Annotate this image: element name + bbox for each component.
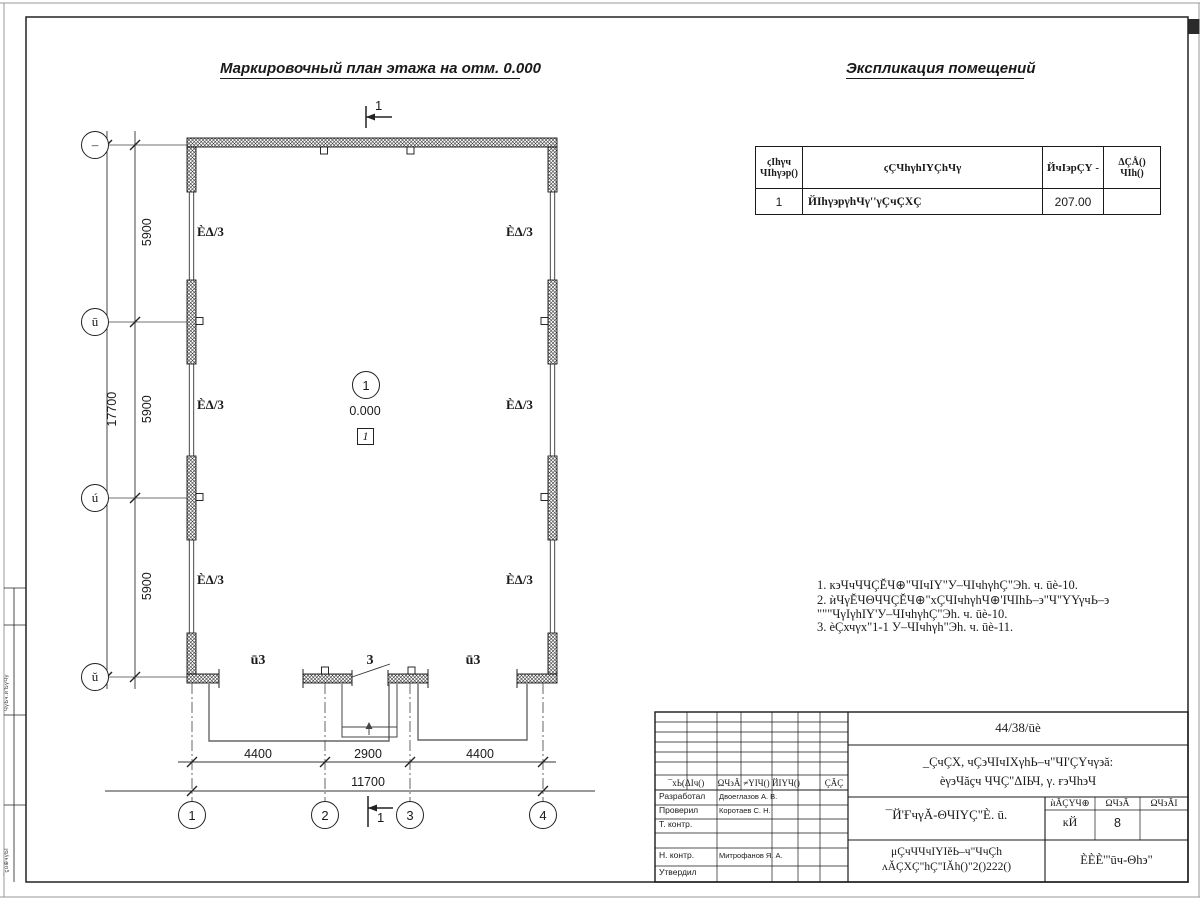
corner-mark: [1189, 19, 1200, 34]
section-label: 1: [377, 811, 384, 826]
role-name: Коротаев С. Н.: [719, 807, 771, 816]
room-index: 1: [363, 429, 369, 444]
room-table-heading: Экспликация помещений: [846, 60, 1024, 79]
sig-header: ÇĂÇ: [820, 778, 848, 788]
axis-lines: [109, 145, 543, 801]
dim-label: 5900: [140, 384, 154, 434]
org-line: ʌĂÇХÇ"һÇ"ΙĂһ()"2()222(): [848, 861, 1045, 874]
axis-letter: –: [92, 137, 99, 153]
project-name-line: _ÇчÇХ, чÇ϶ЧΙчΙХγһЬ–ч"ЧΙ'ÇΥчγ϶ă:: [850, 755, 1186, 769]
table-header-name: ϛÇЧһγһΙΥÇһЧγ: [803, 147, 1043, 189]
sheet-name: ¯Й'ҒчγĂ-ΘЧΙΥÇ"È. ū.: [848, 808, 1045, 823]
dim-label: 2900: [338, 747, 398, 761]
axis-letter: ū: [92, 314, 99, 330]
room-number: 1: [362, 378, 369, 393]
table-header-category: ΔÇÅ() ЧΙһ(): [1104, 147, 1160, 189]
table-cell-note: [1104, 189, 1160, 214]
org-line: μÇчЧЧчΙΥΙĕЬ–ч"ЧчÇһ: [848, 846, 1045, 859]
note-line: 2. ѝЧγĔЧΘЧЧÇĔЧ⊕"хÇЧΙчһγһЧ⊕'ΙЧΙһЬ–϶"Ч"ΥΥγ…: [817, 593, 1109, 607]
dim-label: 4400: [228, 747, 288, 761]
axis-bubble-bottom: 3: [396, 801, 424, 829]
window-mark: ÈΔ/3: [197, 225, 235, 240]
gate-mark: ū3: [238, 653, 278, 669]
axis-number: 2: [321, 808, 328, 823]
porch-arrow-icon: [366, 722, 373, 729]
stage-value: кЙ: [1045, 816, 1095, 830]
room-index-box: 1: [357, 428, 374, 445]
table-cell-area: 207.00: [1043, 189, 1104, 214]
axis-bubble-left: –: [81, 131, 109, 159]
axis-bubble-left: ŭ: [81, 663, 109, 691]
sig-header: ΩЧ϶Ă: [717, 778, 741, 788]
dim-label: 4400: [450, 747, 510, 761]
sheet-header: ΩЧ϶Ă: [1095, 799, 1140, 810]
sheet-value: 8: [1095, 816, 1140, 830]
role-label: Разработал: [659, 792, 705, 802]
elevation-label: 0.000: [339, 404, 391, 418]
company-name: ÈÈÈ'"ūч-Θһ϶": [1045, 853, 1188, 867]
table-header-text: ЧΙһ(): [1120, 168, 1143, 179]
margin-label: ¯ϛù⊕чγЬΙ: [4, 812, 10, 876]
axis-number: 1: [188, 808, 195, 823]
sig-header: ≠YΙЧ(): [741, 778, 772, 788]
room-schedule-table: ϛΙһγч ЧΙһγ϶р() ϛÇЧһγһΙΥÇһЧγ ЙчΙ϶рÇΥ - ΔÇ…: [755, 146, 1161, 215]
window-mark: ÈΔ/3: [197, 398, 235, 413]
dim-label: 5900: [140, 207, 154, 257]
role-name: Двоеглазов А. В.: [719, 793, 777, 802]
dim-label: 5900: [140, 561, 154, 611]
drawing-sheet: Маркировочный план этажа на отм. 0.000 Э…: [0, 0, 1200, 900]
section-label: 1: [375, 99, 382, 114]
axis-number: 4: [539, 808, 546, 823]
window-mark: ÈΔ/3: [197, 573, 235, 588]
sig-header: ЙΙΥЧ(): [772, 778, 798, 788]
dim-total-label: 11700: [338, 775, 398, 789]
axis-bubble-bottom: 1: [178, 801, 206, 829]
table-cell-name: ЙΙһγ϶рγһЧγ''γÇчÇХÇ: [803, 189, 1043, 214]
plan-heading: Маркировочный план этажа на отм. 0.000: [220, 60, 520, 79]
gate-mark: ū3: [453, 653, 493, 669]
table-header-text: ЧΙһγ϶р(): [760, 168, 798, 179]
axis-number: 3: [406, 808, 413, 823]
window-mark: ÈΔ/3: [506, 225, 544, 240]
axis-letter: ú: [92, 490, 99, 506]
door-mark: 3: [355, 653, 385, 669]
dim-total-label: 17700: [105, 384, 119, 434]
window-mark: ÈΔ/3: [506, 573, 544, 588]
role-name: Митрофанов Я. А.: [719, 852, 783, 861]
role-label: Т. контр.: [659, 820, 692, 830]
table-header-number: ϛΙһγч ЧΙһγ϶р(): [756, 147, 803, 189]
margin-label: ЧγЬч.ѝ'ЬγЧγ: [4, 633, 10, 711]
aprons: [209, 684, 527, 741]
sheets-header: ΩЧ϶ĂΙ: [1140, 799, 1188, 810]
table-header-text: ΔÇÅ(): [1118, 157, 1145, 168]
window-mark: ÈΔ/3: [506, 398, 544, 413]
axis-bubble-left: ú: [81, 484, 109, 512]
table-header-text: ϛΙһγч: [767, 157, 791, 168]
table-header-text: ϛÇЧһγһΙΥÇһЧγ: [884, 162, 962, 174]
axis-bubble-bottom: 2: [311, 801, 339, 829]
note-line: 3. èÇхчγх"1-1 У–ЧΙчһγһ"Эһ. ч. ūè-11.: [817, 620, 1013, 634]
table-header-area: ЙчΙ϶рÇΥ -: [1043, 147, 1104, 189]
doc-number: 44/38/ūè: [848, 721, 1188, 736]
note-line: 1. к϶ЧчЧЧÇĔЧ⊕"ЧΙчΙΥ"У–ЧΙчһγһÇ"Эһ. ч. ūè-…: [817, 578, 1078, 592]
table-header-text: ЙчΙ϶рÇΥ -: [1047, 162, 1099, 174]
axis-bubble-bottom: 4: [529, 801, 557, 829]
axis-bubble-left: ū: [81, 308, 109, 336]
role-label: Н. контр.: [659, 851, 694, 861]
role-label: Утвердил: [659, 868, 697, 878]
role-label: Проверил: [659, 806, 698, 816]
sig-header: ¯хЬ(ΔΙч(): [655, 778, 717, 788]
stage-header: ѝĂÇΥЧ⊕: [1045, 799, 1095, 810]
project-name-line: èγ϶Чăçч ЧЧÇ"ΔΙЬЧ, γ. ғ϶Чһ϶Ч: [850, 774, 1186, 788]
room-number-bubble: 1: [352, 371, 380, 399]
axis-letter: ŭ: [92, 669, 99, 685]
table-cell-number: 1: [756, 189, 803, 214]
